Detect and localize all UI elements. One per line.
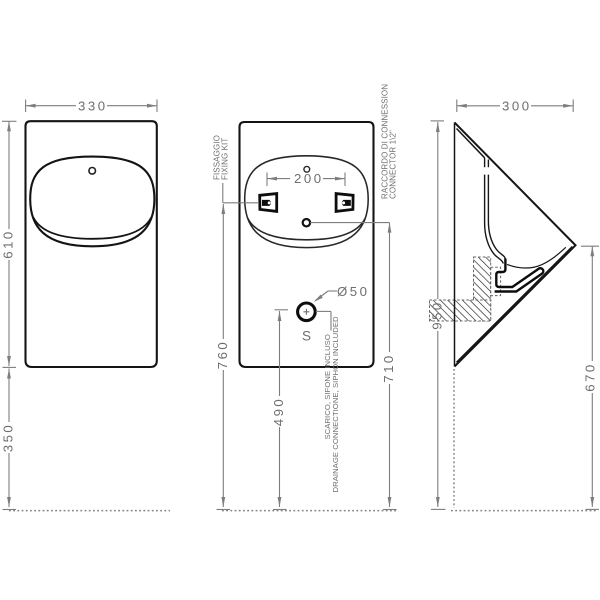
svg-text:710: 710 (381, 353, 396, 383)
svg-text:200: 200 (294, 171, 324, 186)
svg-text:760: 760 (215, 340, 230, 370)
svg-text:670: 670 (583, 362, 598, 392)
svg-text:610: 610 (1, 229, 16, 259)
svg-text:300: 300 (502, 98, 532, 113)
svg-text:350: 350 (1, 423, 16, 453)
svg-text:330: 330 (78, 98, 108, 113)
svg-text:S: S (302, 328, 311, 343)
svg-text:950: 950 (429, 300, 444, 330)
svg-text:FIXING KIT: FIXING KIT (220, 138, 229, 180)
svg-text:DRAINAGE CONNECTIONE, SIPHON I: DRAINAGE CONNECTIONE, SIPHON INCLUDED (331, 316, 340, 493)
svg-text:Ø50: Ø50 (337, 284, 369, 299)
svg-text:490: 490 (271, 397, 286, 427)
svg-text:CONNECTOR 1\2": CONNECTOR 1\2" (389, 130, 398, 199)
